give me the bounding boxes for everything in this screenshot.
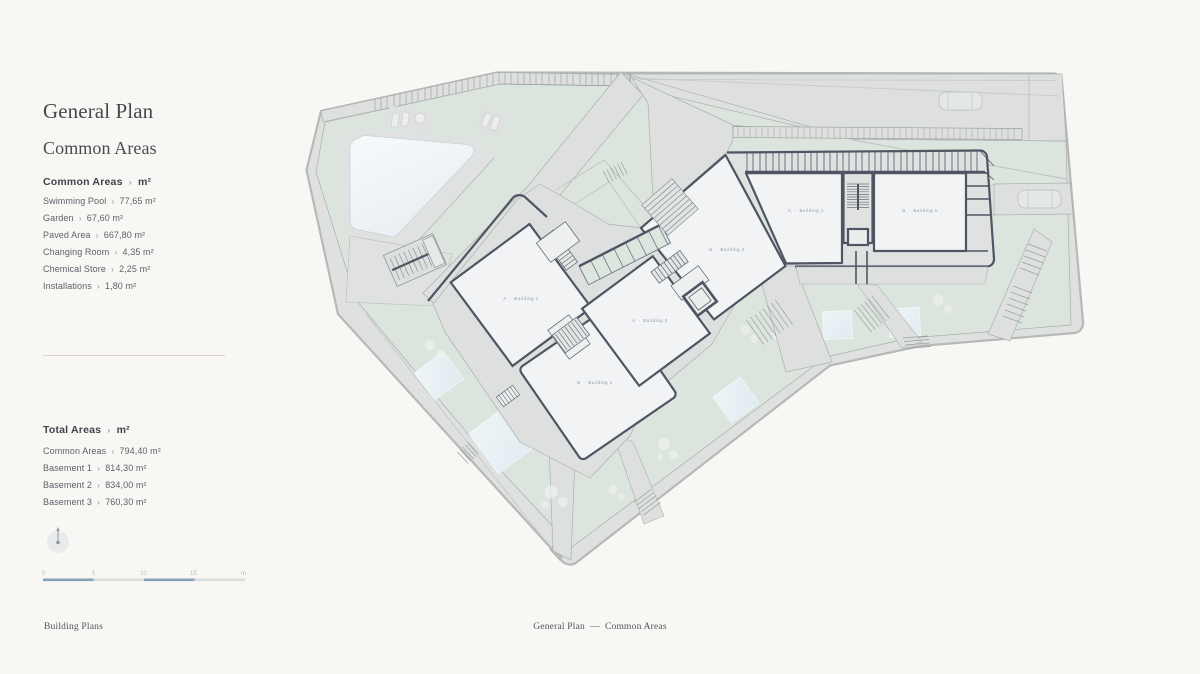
svg-text:0: 0 [42, 571, 46, 577]
svg-text:15: 15 [190, 571, 197, 577]
svg-text:A · Building 2: A · Building 2 [632, 318, 667, 323]
svg-text:m: m [241, 571, 246, 577]
svg-text:B · Building 2: B · Building 2 [709, 247, 744, 252]
svg-text:10: 10 [140, 571, 147, 577]
svg-text:A · Building 1: A · Building 1 [503, 296, 538, 301]
svg-text:5: 5 [92, 571, 96, 577]
svg-text:B · Building 1: B · Building 1 [902, 208, 937, 213]
svg-text:C · Building 1: C · Building 1 [788, 208, 824, 213]
svg-text:B · Building 1: B · Building 1 [577, 380, 612, 385]
